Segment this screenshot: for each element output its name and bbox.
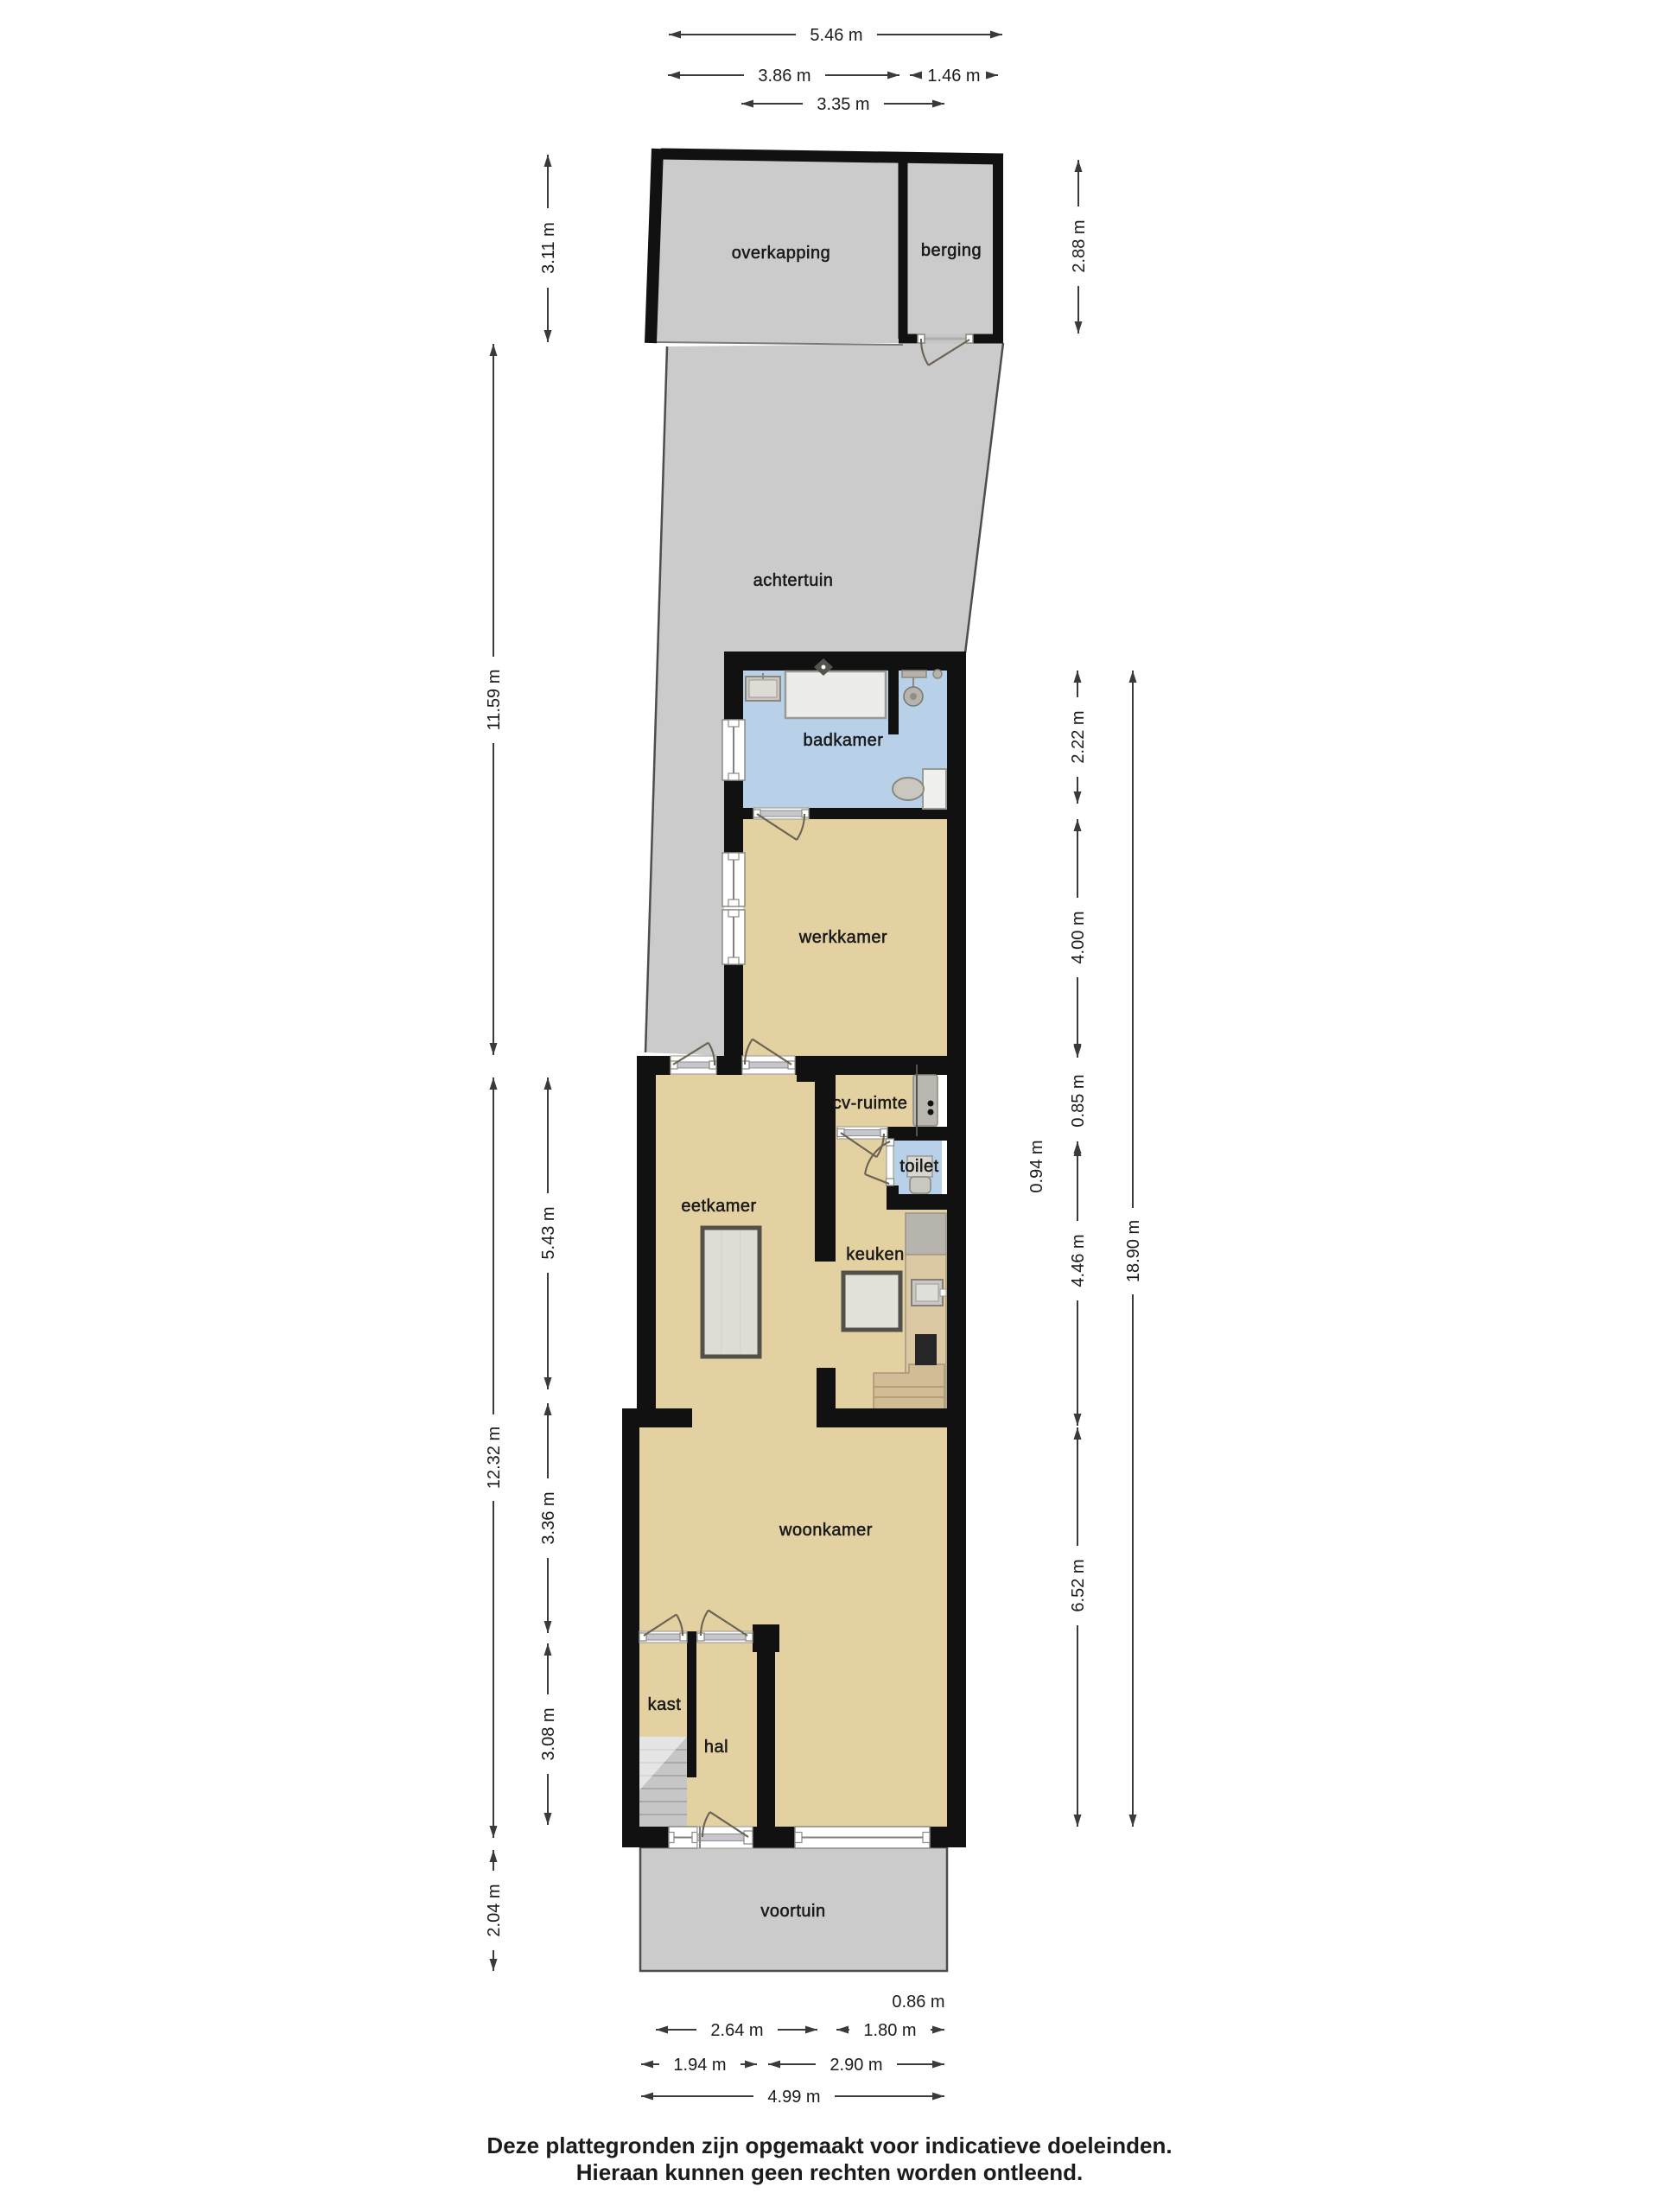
svg-text:0.86 m: 0.86 m bbox=[892, 1993, 944, 2012]
svg-text:3.36 m: 3.36 m bbox=[539, 1491, 558, 1544]
svg-text:keuken: keuken bbox=[846, 1245, 905, 1264]
svg-text:2.88 m: 2.88 m bbox=[1070, 219, 1089, 272]
svg-text:11.59 m: 11.59 m bbox=[485, 670, 504, 731]
svg-text:2.22 m: 2.22 m bbox=[1069, 710, 1088, 763]
svg-text:0.85 m: 0.85 m bbox=[1069, 1074, 1088, 1127]
svg-text:1.94 m: 1.94 m bbox=[673, 2056, 726, 2075]
svg-text:3.08 m: 3.08 m bbox=[539, 1707, 558, 1760]
svg-text:Hieraan kunnen geen rechten wo: Hieraan kunnen geen rechten worden ontle… bbox=[576, 2159, 1084, 2185]
svg-text:0.94 m: 0.94 m bbox=[1027, 1140, 1046, 1192]
svg-text:4.46 m: 4.46 m bbox=[1069, 1234, 1088, 1287]
svg-text:hal: hal bbox=[704, 1738, 728, 1757]
svg-text:2.04 m: 2.04 m bbox=[485, 1884, 504, 1936]
svg-text:overkapping: overkapping bbox=[732, 244, 830, 263]
svg-text:werkkamer: werkkamer bbox=[798, 928, 887, 947]
svg-text:5.43 m: 5.43 m bbox=[539, 1206, 558, 1259]
svg-text:3.11 m: 3.11 m bbox=[539, 222, 558, 274]
svg-text:cv-ruimte: cv-ruimte bbox=[833, 1094, 908, 1113]
svg-text:kast: kast bbox=[648, 1695, 682, 1714]
svg-text:voortuin: voortuin bbox=[760, 1902, 825, 1921]
svg-text:toilet: toilet bbox=[899, 1157, 938, 1176]
svg-text:12.32 m: 12.32 m bbox=[485, 1427, 504, 1489]
svg-text:eetkamer: eetkamer bbox=[681, 1197, 756, 1216]
svg-text:badkamer: badkamer bbox=[804, 731, 884, 750]
svg-text:1.80 m: 1.80 m bbox=[863, 2021, 916, 2040]
svg-text:5.46 m: 5.46 m bbox=[810, 26, 862, 45]
svg-text:4.99 m: 4.99 m bbox=[767, 2088, 820, 2107]
svg-text:achtertuin: achtertuin bbox=[753, 571, 834, 590]
svg-text:1.46 m: 1.46 m bbox=[927, 67, 980, 86]
svg-text:2.90 m: 2.90 m bbox=[829, 2056, 882, 2075]
svg-text:woonkamer: woonkamer bbox=[779, 1521, 873, 1540]
svg-text:2.64 m: 2.64 m bbox=[710, 2021, 763, 2040]
svg-text:4.00 m: 4.00 m bbox=[1069, 911, 1088, 963]
svg-text:3.35 m: 3.35 m bbox=[817, 95, 869, 114]
svg-text:6.52 m: 6.52 m bbox=[1069, 1559, 1088, 1611]
svg-text:Deze plattegronden zijn opgema: Deze plattegronden zijn opgemaakt voor i… bbox=[486, 2133, 1172, 2158]
svg-text:3.86 m: 3.86 m bbox=[758, 67, 810, 86]
svg-text:18.90 m: 18.90 m bbox=[1124, 1220, 1143, 1282]
svg-text:berging: berging bbox=[921, 241, 982, 260]
